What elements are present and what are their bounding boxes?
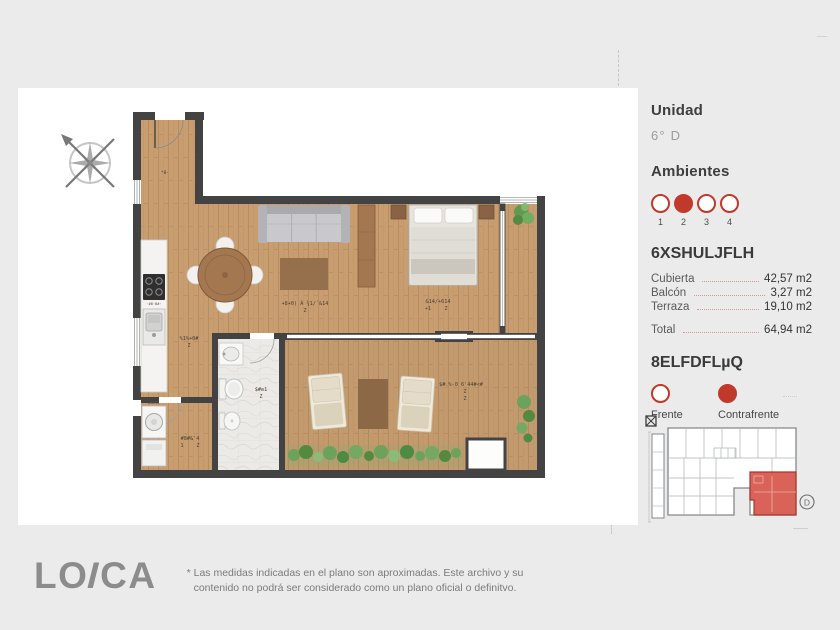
ambientes-heading: Ambientes [651,163,812,181]
terrace-furniture [308,373,435,432]
ambiente-option-4[interactable]: 4 [720,194,739,227]
trim-mark [611,524,612,534]
orientation-selector: Frente Contrafrente [651,384,812,421]
floorplan-drawing: *8· +8+0) Á ¾1/´&14 Z &14/+614 +1 Z %1%+… [18,88,638,525]
unidad-heading: Unidad [651,102,812,120]
svg-text:Z: Z [196,443,199,449]
loica-logo: LOICA [34,556,157,596]
bed [409,205,477,285]
nightstand [479,205,494,219]
superficie-heading: 6XSHULJFLH [651,244,812,263]
svg-text:Z: Z [259,394,262,400]
nightstand [391,205,406,219]
svg-text:+1: +1 [425,306,431,312]
floorplan-card: *8· +8+0) Á ¾1/´&14 Z &14/+614 +1 Z %1%+… [18,88,638,525]
unit-info-panel: Unidad 6° D Ambientes 1 2 3 4 6XSHULJFLH [651,102,812,421]
lounge-chair [308,373,347,430]
bath-label: $#e1 [255,387,268,393]
trim-mark [793,528,808,529]
table-row: Terraza 19,10 m2 [651,300,812,314]
dotted-leader [697,300,759,310]
living-label: +8+0) Á ¾1/´&14 [282,300,329,307]
ubicacion-heading: 8ELFDFLµQ [651,353,812,372]
ambiente-circle[interactable] [651,194,670,213]
frente-circle[interactable] [651,384,670,403]
table-row: Cubierta 42,57 m2 [651,272,812,286]
terrace-label: $#.%-0 6'44#<# [439,382,484,388]
ambiente-option-2[interactable]: 2 [674,194,693,227]
svg-text:Z: Z [187,343,190,349]
surface-table: Cubierta 42,57 m2 Balcón 3,27 m2 Terraza… [651,272,812,337]
laundry-label: #8#&'4 [181,436,200,442]
svg-text:·#8·8#·: ·#8·8#· [146,302,161,306]
unit-number: 6° D [651,129,812,143]
ambiente-circle[interactable] [697,194,716,213]
cooktop [143,274,165,300]
orientation-contrafrente[interactable]: Contrafrente [718,384,779,421]
svg-text:Z: Z [463,396,466,402]
ambiente-option-3[interactable]: 3 [697,194,716,227]
unit-letter: D [804,498,810,508]
bathroom-fixtures [219,343,243,430]
trim-mark [817,36,827,37]
kitchen-label: %1%+0# [180,336,200,342]
brochure-page: *8· +8+0) Á ¾1/´&14 Z &14/+614 +1 Z %1%+… [0,0,840,630]
building-key-plan: D [648,422,818,528]
ambiente-option-1[interactable]: 1 [651,194,670,227]
terrace-rug [358,379,388,429]
ambientes-selector: 1 2 3 4 [651,194,812,227]
dotted-leader [694,286,765,296]
dotted-leader [683,323,759,333]
dotted-leader [702,272,759,282]
trim-mark [618,50,619,86]
entry-label: *8· [161,170,169,176]
laundry-fixtures [142,406,166,466]
console-cabinet [358,205,375,287]
svg-text:Z: Z [444,306,447,312]
svg-text:1: 1 [180,443,183,449]
disclaimer-text: * Las medidas indicadas en el plano son … [181,566,529,596]
svg-text:#8#44: #8#44 [149,401,160,405]
ambiente-circle-selected[interactable] [674,194,693,213]
kitchen-fixtures [141,240,167,392]
compass-icon [61,134,114,187]
svg-text:Z: Z [303,308,306,314]
orientation-frente[interactable]: Frente [651,384,718,421]
table-row-total: Total 64,94 m2 [651,323,812,337]
planter-box [467,439,505,470]
ambiente-circle[interactable] [720,194,739,213]
table-row: Balcón 3,27 m2 [651,286,812,300]
living-rug [280,258,328,290]
bedroom-label: &14/+614 [426,299,451,305]
lounge-chair [397,376,435,432]
svg-text:Z: Z [463,389,466,395]
contrafrente-circle-selected[interactable] [718,384,737,403]
sofa [258,205,350,243]
highlighted-unit [750,472,796,515]
